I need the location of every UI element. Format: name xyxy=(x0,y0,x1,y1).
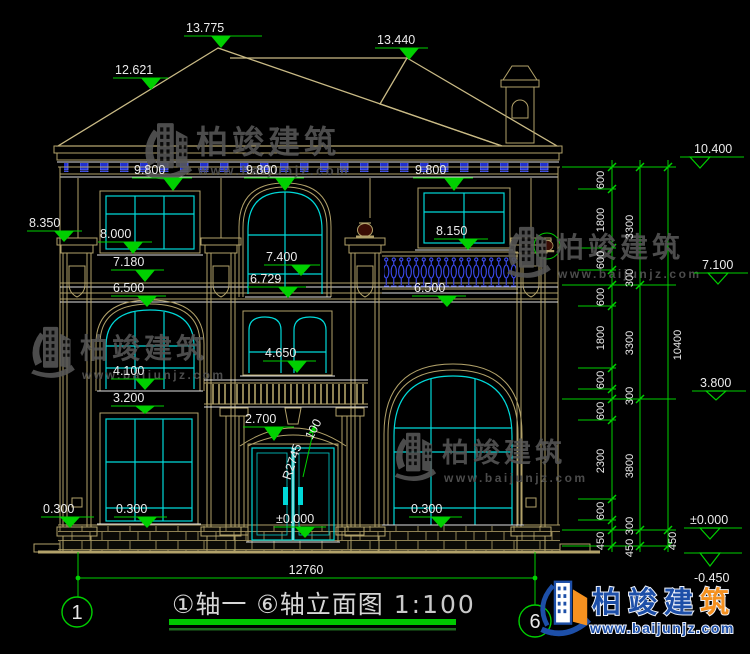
level-label: 8.150 xyxy=(436,224,467,238)
chain-dim-label: 600 xyxy=(595,402,607,420)
level-label: 3.200 xyxy=(113,391,144,405)
chain-dim-label: 1800 xyxy=(595,208,607,232)
level-label: 7.100 xyxy=(702,258,733,272)
keystone xyxy=(285,408,301,424)
chain-dim-label: 450 xyxy=(595,532,607,550)
level-label: 9.800 xyxy=(246,163,277,177)
watermark-building-icon xyxy=(31,327,75,378)
door-handle xyxy=(283,487,288,505)
level-label: 4.650 xyxy=(265,346,296,360)
chain-dim-label: 600 xyxy=(595,288,607,306)
title-block: ①轴一 ⑥轴立面图1:100 xyxy=(169,590,476,631)
level-label: 8.000 xyxy=(100,227,131,241)
level-triangle xyxy=(706,391,726,400)
chain-dim-label: 2300 xyxy=(595,449,607,473)
level-label: 9.800 xyxy=(415,163,446,177)
door-handle xyxy=(298,487,303,505)
level-triangle xyxy=(444,178,464,191)
logo-brand-last: 筑 xyxy=(700,585,736,619)
chain-dim-label: 600 xyxy=(595,371,607,389)
level-label: 0.300 xyxy=(116,502,147,516)
cad-canvas: 柏竣建筑www.baijunjz.com柏竣建筑www.baijunjz.com… xyxy=(0,0,750,654)
level-label: 9.800 xyxy=(134,163,165,177)
level-label: 0.300 xyxy=(411,502,442,516)
level-triangle xyxy=(123,242,143,254)
level-label: -0.450 xyxy=(694,571,729,585)
watermark: 柏竣建筑www.baijunjz.com xyxy=(395,433,588,485)
chain-dim-label: 300 xyxy=(624,517,636,535)
level-label: ±0.000 xyxy=(690,513,728,527)
logo-building-icon xyxy=(542,582,590,634)
chain-dim-label: 450 xyxy=(624,539,636,557)
axis-bubble-number: 6 xyxy=(529,611,540,633)
level-label: 10.400 xyxy=(694,142,732,156)
title-underline-thin xyxy=(169,628,456,631)
level-triangle xyxy=(211,36,231,48)
level-triangle xyxy=(275,178,295,191)
level-label: 12.621 xyxy=(115,63,153,77)
level-triangle xyxy=(690,157,710,168)
level-label: 6.500 xyxy=(113,281,144,295)
level-label: 7.180 xyxy=(113,255,144,269)
level-label: 4.100 xyxy=(113,364,144,378)
level-label: 6.500 xyxy=(414,281,445,295)
watermark-brand: 柏竣建筑 xyxy=(442,437,566,469)
urn-ornament xyxy=(356,223,374,238)
watermark-brand: 柏竣建筑 xyxy=(196,123,340,161)
watermark-brand: 柏竣建筑 xyxy=(556,231,684,264)
level-triangle xyxy=(163,178,183,191)
chain-dim-label: 1800 xyxy=(595,326,607,350)
pergola-slats xyxy=(206,384,364,404)
stone-base xyxy=(34,525,600,552)
logo-brand-text: 柏竣建 xyxy=(592,585,700,619)
level-triangle xyxy=(700,528,720,539)
dimension-chain xyxy=(562,160,676,552)
axis-bubble-number: 1 xyxy=(71,602,82,624)
level-label: 13.440 xyxy=(377,33,415,47)
logo-url: www.baijunjz.com xyxy=(589,620,735,636)
brand-logo: 柏竣建 筑 www.baijunjz.com xyxy=(542,582,736,636)
level-label: 0.300 xyxy=(43,502,74,516)
chain-dim-label: 600 xyxy=(595,502,607,520)
level-triangle xyxy=(287,361,307,373)
chain-dim-label: 3300 xyxy=(624,215,636,239)
chain-dim-label: 10400 xyxy=(672,330,684,361)
watermark-url: www.baijunjz.com xyxy=(443,471,588,485)
balcony-railing xyxy=(382,252,518,293)
level-label: ±0.000 xyxy=(276,512,314,526)
title-underline xyxy=(169,619,456,625)
level-triangle xyxy=(135,379,155,390)
level-triangle xyxy=(700,553,720,566)
watermark-building-icon xyxy=(395,433,436,481)
watermark-brand: 柏竣建筑 xyxy=(80,332,208,365)
level-label: 6.729 xyxy=(250,272,281,286)
level-triangle xyxy=(708,273,728,284)
chain-dim-label: 3800 xyxy=(624,454,636,478)
chain-dim-label: 600 xyxy=(595,171,607,189)
dim-label: 100 xyxy=(302,417,324,442)
level-label: 2.700 xyxy=(245,412,276,426)
chain-dim-label: 450 xyxy=(667,532,679,550)
level-label: 8.350 xyxy=(29,216,60,230)
dim-label: 12760 xyxy=(289,563,324,577)
level-label: 13.775 xyxy=(186,21,224,35)
chain-dim-label: 300 xyxy=(624,387,636,405)
chain-dim-label: 300 xyxy=(624,269,636,287)
drawing-title: ①轴一 ⑥轴立面图1:100 xyxy=(172,590,476,619)
level-label: 3.800 xyxy=(700,376,731,390)
level-label: 7.400 xyxy=(266,250,297,264)
chain-dim-label: 600 xyxy=(595,251,607,269)
chain-dim-label: 3300 xyxy=(624,331,636,355)
